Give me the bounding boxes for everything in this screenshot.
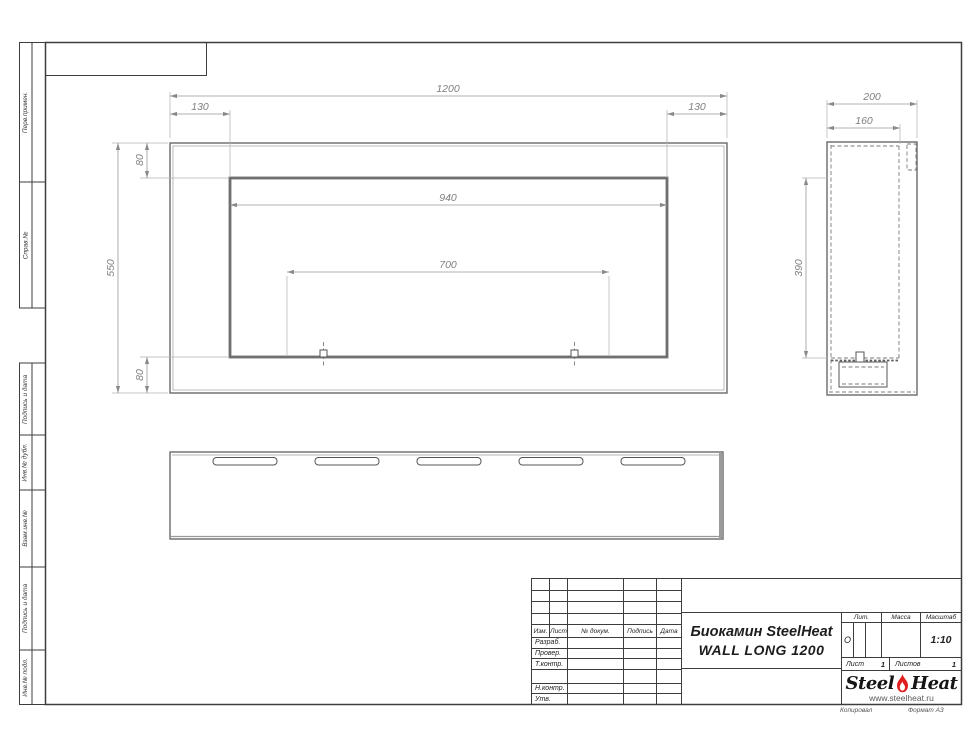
dim-200: 200 (862, 91, 881, 103)
strip-label-perv-primen: Перв.примен. (19, 42, 32, 182)
title-block-revision-table: Изм. Лист № докум. Подпись Дата Разраб. … (532, 579, 682, 704)
row-empty (532, 670, 568, 683)
lit-block: Лит. О (842, 613, 882, 657)
revision-header-row: Изм. Лист № докум. Подпись Дата (532, 625, 681, 638)
dim-390: 390 (793, 259, 805, 277)
vent-slot (213, 458, 277, 466)
col-data: Дата (657, 625, 681, 637)
burner-mount-left (320, 350, 327, 357)
sheets-label: Листов (895, 661, 921, 668)
vent-slot (315, 458, 379, 466)
side-view (827, 142, 917, 395)
col-podpis: Подпись (624, 625, 657, 637)
doc-title-line1: Биокамин SteelHeat (690, 624, 832, 640)
logo-url: www.steelheat.ru (869, 693, 934, 703)
scale-label: Масштаб (921, 613, 961, 623)
drawing-sheet: 1200 130 130 940 700 80 550 80 (0, 0, 970, 749)
dim-80-top: 80 (134, 154, 146, 166)
dim-940: 940 (439, 192, 457, 204)
company-logo-cell: Steel Heat www.steelheat.ru (842, 671, 961, 704)
row-tkontr: Т.контр. (532, 659, 568, 669)
lit-label: Лит. (842, 613, 881, 623)
dim-700: 700 (439, 259, 457, 271)
title-block: Изм. Лист № докум. Подпись Дата Разраб. … (531, 578, 962, 705)
row-nkontr: Н.контр. (532, 684, 568, 694)
bottom-view (170, 452, 723, 539)
row-utv: Утв. (532, 694, 568, 704)
sheet-label: Лист (846, 661, 864, 668)
lit-value: О (842, 623, 854, 657)
format-label: Формат А3 (908, 707, 944, 714)
strip-label-inv-dubl: Инв.№ дубл. (19, 435, 32, 490)
mass-label: Масса (882, 613, 920, 623)
strip-label-sprav-no: Справ.№ (19, 182, 32, 308)
top-left-stamp-box (46, 43, 207, 76)
dim-550: 550 (105, 259, 117, 277)
row-razrab: Разраб. (532, 638, 568, 648)
sheet-count-row: Лист1 Листов1 (842, 658, 961, 671)
vent-slot (519, 458, 583, 466)
strip-label-podpis-data-1: Подпись и дата (19, 363, 32, 435)
dim-1200: 1200 (436, 83, 460, 95)
doc-name-cell: Биокамин SteelHeat WALL LONG 1200 (682, 613, 842, 704)
dim-160: 160 (855, 115, 873, 127)
scale-value: 1:10 (921, 623, 961, 657)
col-izm: Изм. (532, 625, 550, 637)
dim-80-bottom: 80 (134, 369, 146, 381)
burner-tab (856, 352, 864, 362)
burner-box (839, 362, 887, 387)
strip-label-inv-podl: Инв.№ подл. (19, 650, 32, 705)
vent-slot (621, 458, 685, 466)
copied-label: Копировал (840, 707, 872, 714)
dim-130-right: 130 (688, 101, 706, 113)
doc-title-line2: WALL LONG 1200 (699, 642, 825, 658)
logo-word-steel: Steel (846, 673, 895, 694)
designation-cell (682, 579, 961, 613)
row-prover: Провер. (532, 649, 568, 659)
flame-icon (895, 674, 910, 693)
logo-word-heat: Heat (911, 673, 957, 694)
burner-mount-right (571, 350, 578, 357)
sheets-value: 1 (952, 660, 956, 669)
vent-slot (417, 458, 481, 466)
col-dokum: № докум. (568, 625, 624, 637)
sheet-value: 1 (881, 660, 885, 669)
strip-label-vzam-inv: Взам.инв.№ (19, 490, 32, 567)
col-list: Лист (550, 625, 568, 637)
scale-block: Масштаб 1:10 (921, 613, 961, 657)
strip-label-podpis-data-2: Подпись и дата (19, 567, 32, 650)
mass-block: Масса (882, 613, 921, 657)
dim-130-left: 130 (191, 101, 209, 113)
